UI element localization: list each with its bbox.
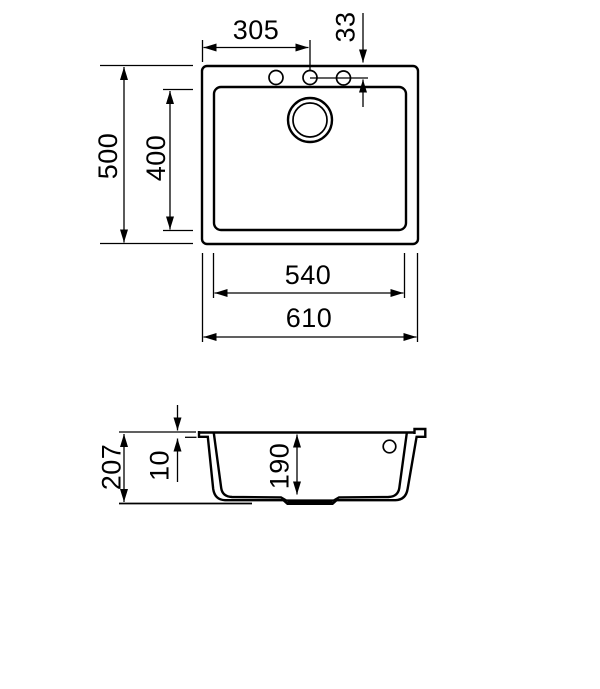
dim-hole-offset-x: 305 xyxy=(203,15,311,71)
tap-hole-left xyxy=(269,71,283,85)
dim-hole-offset-y: 33 xyxy=(331,11,364,107)
dim-label-33: 33 xyxy=(331,11,361,42)
dim-label-540: 540 xyxy=(285,260,332,290)
dim-label-10: 10 xyxy=(145,450,175,481)
overflow-hole xyxy=(383,440,396,453)
bowl-outline xyxy=(214,87,406,230)
sink-dimension-drawing: 305 33 500 400 540 xyxy=(0,0,600,689)
faucet-hole-outer-ring xyxy=(288,98,332,142)
section-view: 207 10 190 xyxy=(97,405,426,504)
dim-label-400: 400 xyxy=(141,135,171,182)
dim-bowl-front-to-back: 400 xyxy=(141,90,193,231)
dim-bowl-width: 540 xyxy=(214,253,405,298)
top-view: 305 33 500 400 540 xyxy=(93,11,418,342)
sink-outer-outline xyxy=(202,66,418,244)
dim-label-610: 610 xyxy=(286,303,333,333)
dim-bowl-inner-depth: 190 xyxy=(265,435,298,495)
drain-recess xyxy=(288,500,333,504)
section-inner-profile xyxy=(214,433,407,501)
dim-label-305: 305 xyxy=(233,15,280,45)
dim-label-500: 500 xyxy=(93,133,123,180)
dim-rim-thickness: 10 xyxy=(145,405,197,482)
dim-label-190: 190 xyxy=(265,443,295,490)
faucet-hole-inner-ring xyxy=(293,103,327,137)
dim-label-207: 207 xyxy=(97,444,127,491)
